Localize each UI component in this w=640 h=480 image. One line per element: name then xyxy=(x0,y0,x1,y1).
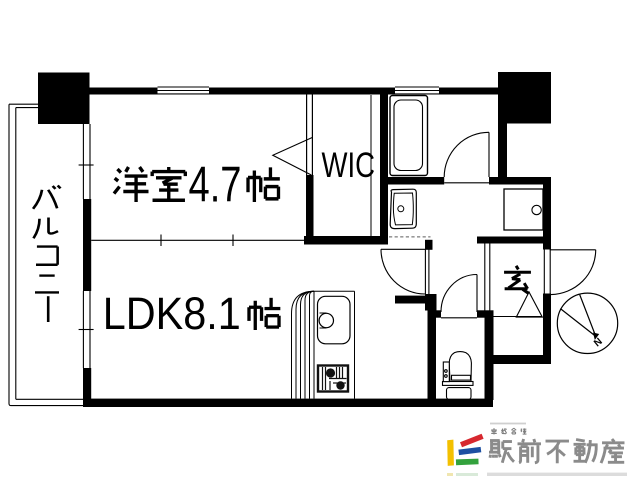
svg-text:LDK8.1: LDK8.1 xyxy=(103,288,241,339)
svg-text:WIC: WIC xyxy=(322,146,376,185)
svg-text:4.7: 4.7 xyxy=(189,157,242,213)
